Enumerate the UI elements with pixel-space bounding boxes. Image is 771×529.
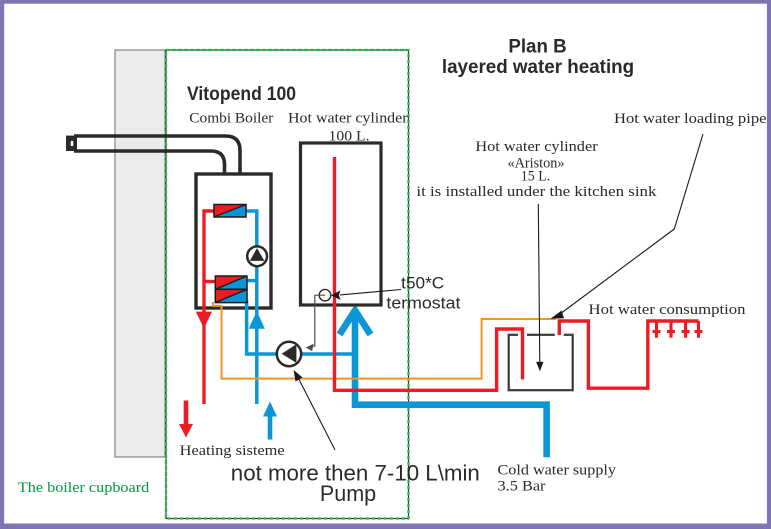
svg-text:Hot water cylinder: Hot water cylinder [475,139,597,155]
svg-text:it is installed under the kitc: it is installed under the kitchen sink [416,184,657,200]
svg-text:Hot water loading pipe: Hot water loading pipe [614,111,767,127]
svg-text:t50*C: t50*C [401,274,444,292]
svg-text:The boiler cupboard: The boiler cupboard [18,480,150,496]
svg-text:100 L.: 100 L. [329,129,370,145]
svg-text:Plan B: Plan B [508,37,566,58]
svg-text:Vitopend 100: Vitopend 100 [187,83,296,105]
svg-text:Pump: Pump [320,481,376,506]
svg-text:Hot water cylinder: Hot water cylinder [288,111,408,127]
svg-text:Combi Boiler: Combi Boiler [189,111,273,127]
svg-text:Hot water consumption: Hot water consumption [589,302,747,318]
svg-text:15 L.: 15 L. [521,169,551,185]
svg-text:3.5 Bar: 3.5 Bar [498,478,546,494]
svg-text:Cold water supply: Cold water supply [498,463,617,479]
svg-text:termostat: termostat [386,295,460,313]
svg-text:Heating sisteme: Heating sisteme [180,443,285,459]
svg-text:layered water heating: layered water heating [442,57,634,78]
